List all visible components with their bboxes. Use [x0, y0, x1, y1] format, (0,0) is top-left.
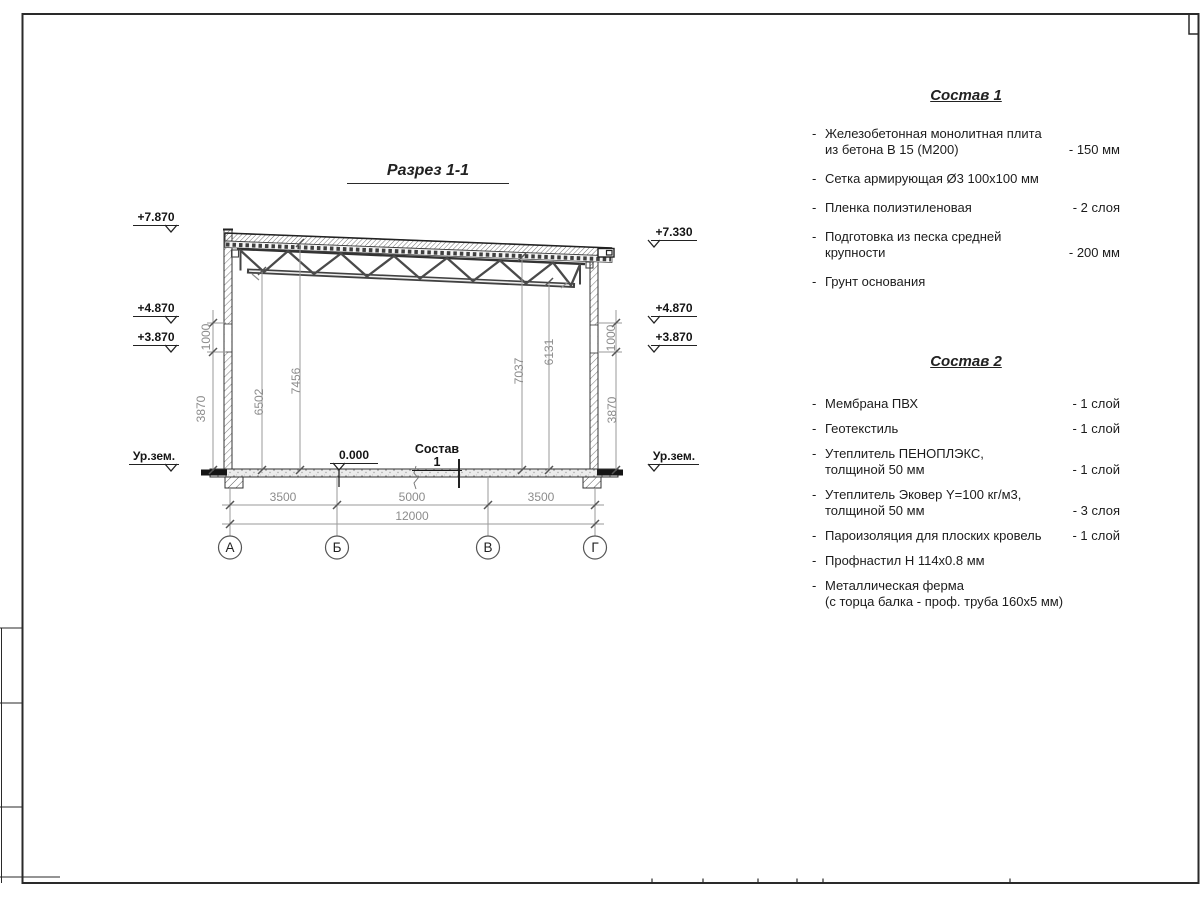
item-text: Утеплитель ПЕНОПЛЭКС, толщиной 50 мм [825, 446, 1070, 478]
item-text: Утеплитель Эковер Y=100 кг/м3, толщиной … [825, 487, 1070, 519]
material-item: - Утеплитель ПЕНОПЛЭКС, толщиной 50 мм -… [812, 446, 1120, 478]
material-item: - Железобетонная монолитная плита из бет… [812, 126, 1120, 158]
elevation-right-mid2: +3.870 [651, 331, 697, 346]
material-item: - Пленка полиэтиленовая - 2 слоя [812, 200, 1120, 216]
composition-2-title: Состав 2 [812, 354, 1120, 370]
dim-span-3: 3500 [517, 491, 565, 503]
material-item: - Пароизоляция для плоских кровель - 1 с… [812, 528, 1120, 544]
dim-interior-7456: 7456 [290, 359, 302, 403]
material-item: - Металлическая ферма (с торца балка - п… [812, 578, 1120, 610]
item-text: Пароизоляция для плоских кровель [825, 528, 1070, 544]
material-item: - Утеплитель Эковер Y=100 кг/м3, толщино… [812, 487, 1120, 519]
item-bullet: - [812, 171, 816, 187]
material-item: - Геотекстиль - 1 слой [812, 421, 1120, 437]
dim-span-1: 3500 [259, 491, 307, 503]
dim-wall-left-1000: 1000 [200, 315, 212, 359]
dim-interior-7037: 7037 [513, 349, 525, 393]
item-bullet: - [812, 274, 816, 290]
item-text: Грунт основания [825, 274, 1070, 290]
elevation-left-mid2: +3.870 [133, 331, 179, 346]
dim-wall-right-1000: 1000 [605, 316, 617, 360]
item-value: - 3 слоя [1073, 503, 1120, 519]
item-bullet: - [812, 487, 816, 503]
dim-wall-left-3870: 3870 [195, 387, 207, 431]
composition-1-block: Состав 1 - Железобетонная монолитная пли… [812, 88, 1120, 303]
material-item: - Мембрана ПВХ - 1 слой [812, 396, 1120, 412]
floor-composition-label: Состав 1 [412, 443, 462, 471]
axis-bubble-v: В [476, 540, 500, 555]
material-item: - Сетка армирующая Ø3 100x100 мм [812, 171, 1120, 187]
elevation-left-top: +7.870 [133, 211, 179, 226]
item-text: Пленка полиэтиленовая [825, 200, 1070, 216]
zero-level-label: 0.000 [330, 449, 378, 464]
roof [225, 233, 614, 263]
item-text: Подготовка из песка средней крупности [825, 229, 1070, 261]
item-bullet: - [812, 578, 816, 594]
item-text: Мембрана ПВХ [825, 396, 1070, 412]
elevation-right-mid1: +4.870 [651, 302, 697, 317]
axis-bubble-g: Г [583, 540, 607, 555]
item-bullet: - [812, 553, 816, 569]
item-bullet: - [812, 200, 816, 216]
axis-circles [219, 536, 607, 559]
dim-wall-right-3870: 3870 [606, 388, 618, 432]
item-bullet: - [812, 528, 816, 544]
elevation-right-top: +7.330 [651, 226, 697, 241]
item-value: - 1 слой [1072, 528, 1120, 544]
drawing-sheet: Разрез 1-1 +7.870 +4.870 +3.870 Ур.зем. … [0, 0, 1200, 900]
item-value: - 150 мм [1069, 142, 1120, 158]
material-item: - Подготовка из песка средней крупности … [812, 229, 1120, 261]
item-bullet: - [812, 446, 816, 462]
dim-total-12000: 12000 [388, 510, 436, 522]
item-text: Железобетонная монолитная плита из бетон… [825, 126, 1070, 158]
axis-bubble-b: Б [325, 540, 349, 555]
material-item: - Профнастил Н 114x0.8 мм [812, 553, 1120, 569]
item-value: - 1 слой [1072, 421, 1120, 437]
item-bullet: - [812, 396, 816, 412]
dim-interior-6502: 6502 [253, 380, 265, 424]
elevation-left-mid1: +4.870 [133, 302, 179, 317]
item-value: - 2 слоя [1073, 200, 1120, 216]
item-bullet: - [812, 229, 816, 245]
material-item: - Грунт основания [812, 274, 1120, 290]
elevation-right-ground: Ур.зем. [649, 450, 699, 465]
item-text: Профнастил Н 114x0.8 мм [825, 553, 1070, 569]
item-bullet: - [812, 126, 816, 142]
item-text: Сетка армирующая Ø3 100x100 мм [825, 171, 1070, 187]
item-text: Металлическая ферма (с торца балка - про… [825, 578, 1070, 610]
item-bullet: - [812, 421, 816, 437]
dim-interior-6131: 6131 [543, 330, 555, 374]
dim-span-2: 5000 [388, 491, 436, 503]
composition-1-title: Состав 1 [812, 88, 1120, 104]
elevation-left-ground: Ур.зем. [129, 450, 179, 465]
drawing-title: Разрез 1-1 [347, 162, 509, 184]
axis-bubble-a: А [218, 540, 242, 555]
item-text: Геотекстиль [825, 421, 1070, 437]
item-value: - 200 мм [1069, 245, 1120, 261]
composition-2-block: Состав 2 - Мембрана ПВХ - 1 слой - Геоте… [812, 354, 1120, 619]
item-value: - 1 слой [1072, 462, 1120, 478]
item-value: - 1 слой [1072, 396, 1120, 412]
